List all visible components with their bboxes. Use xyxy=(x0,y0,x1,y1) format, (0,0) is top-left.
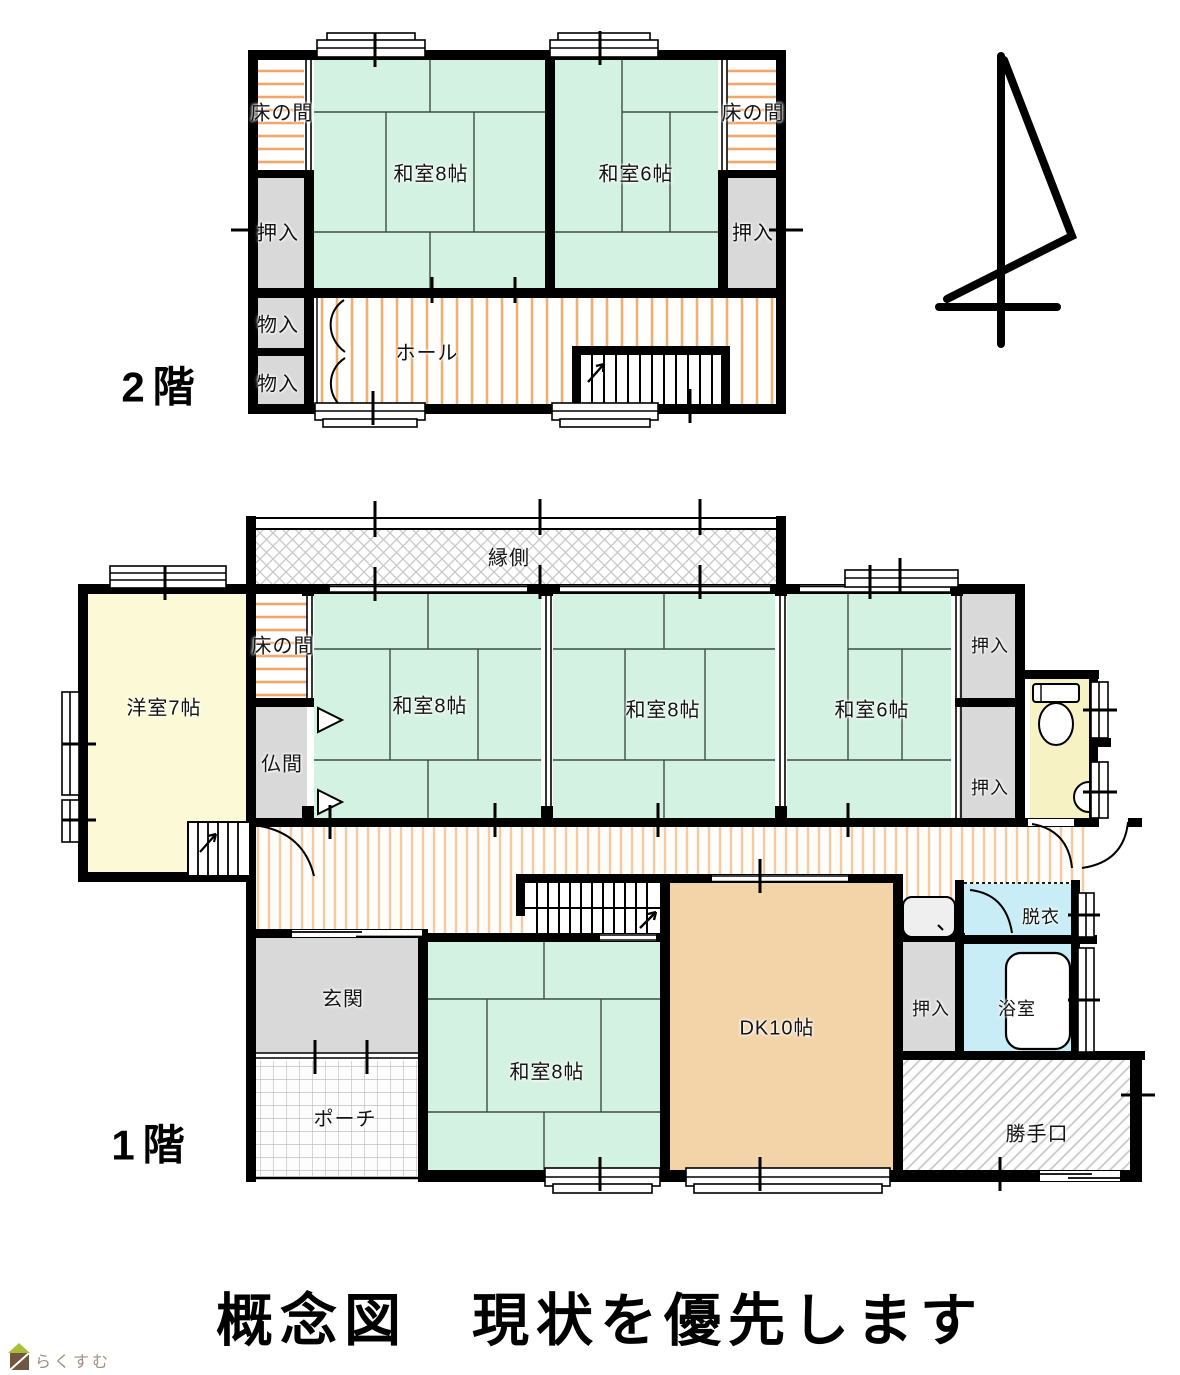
room-label-porch: ポーチ xyxy=(314,1103,377,1132)
logo-house-icon xyxy=(8,1343,30,1370)
room-label-washitsu8-center: 和室8帖 xyxy=(625,694,700,723)
floor2-label: 2階 xyxy=(121,354,202,415)
room-label-datsui: 脱衣 xyxy=(1022,903,1060,929)
staircase-2f xyxy=(581,355,721,404)
floor2-plan xyxy=(231,31,803,427)
room-label-dk: DK10帖 xyxy=(739,1012,814,1041)
room-label-washitsu8-south: 和室8帖 xyxy=(509,1056,584,1085)
room-label-yokushitsu: 浴室 xyxy=(998,995,1036,1021)
room-label-oshiire-right-2f: 押入 xyxy=(732,217,774,246)
floor1-plan xyxy=(62,499,1155,1193)
staircase-yoshitsu-nook xyxy=(188,822,250,876)
room-label-genkan: 玄関 xyxy=(322,983,364,1012)
floorplan-page: 床の間 押入 物入 物入 和室8帖 和室6帖 床の間 押入 ホール 2階 縁側 … xyxy=(0,0,1180,1375)
room-label-yoshitsu7: 洋室7帖 xyxy=(126,692,201,721)
room-label-washitsu6-1f: 和室6帖 xyxy=(834,694,909,723)
room-label-tokonoma-left-2f: 床の間 xyxy=(251,97,314,126)
room-label-washitsu8-left: 和室8帖 xyxy=(392,690,467,719)
room-label-tokonoma-right-2f: 床の間 xyxy=(722,97,785,126)
room-label-tokonoma-1f: 床の間 xyxy=(252,630,315,659)
room-label-oshiire-lower: 押入 xyxy=(971,774,1009,800)
washbasin-icon xyxy=(903,897,955,937)
north-arrow-icon xyxy=(939,56,1072,344)
room-label-katteguchi: 勝手口 xyxy=(1006,1118,1069,1147)
room-label-oshiire-left-2f: 押入 xyxy=(257,217,299,246)
logo-text: らくすむ xyxy=(35,1348,111,1372)
page-title: 概念図 現状を優先します xyxy=(216,1275,984,1357)
staircase-1f-main xyxy=(525,883,660,933)
room-label-butsuma: 仏間 xyxy=(261,748,303,777)
room-oshiire-lower-area xyxy=(959,707,1015,818)
room-label-washitsu6-2f: 和室6帖 xyxy=(598,158,673,187)
floor1-label: 1階 xyxy=(111,1112,192,1173)
room-label-engawa: 縁側 xyxy=(488,542,530,571)
room-katteguchi-area xyxy=(903,1060,1130,1170)
room-label-washitsu8-2f: 和室8帖 xyxy=(393,158,468,187)
room-label-oshiire-dk: 押入 xyxy=(912,995,950,1021)
room-label-hall-2f: ホール xyxy=(396,337,459,366)
room-label-oshiire-upper: 押入 xyxy=(971,632,1009,658)
room-label-monoire-lower: 物入 xyxy=(257,368,299,397)
room-label-monoire-upper: 物入 xyxy=(257,309,299,338)
